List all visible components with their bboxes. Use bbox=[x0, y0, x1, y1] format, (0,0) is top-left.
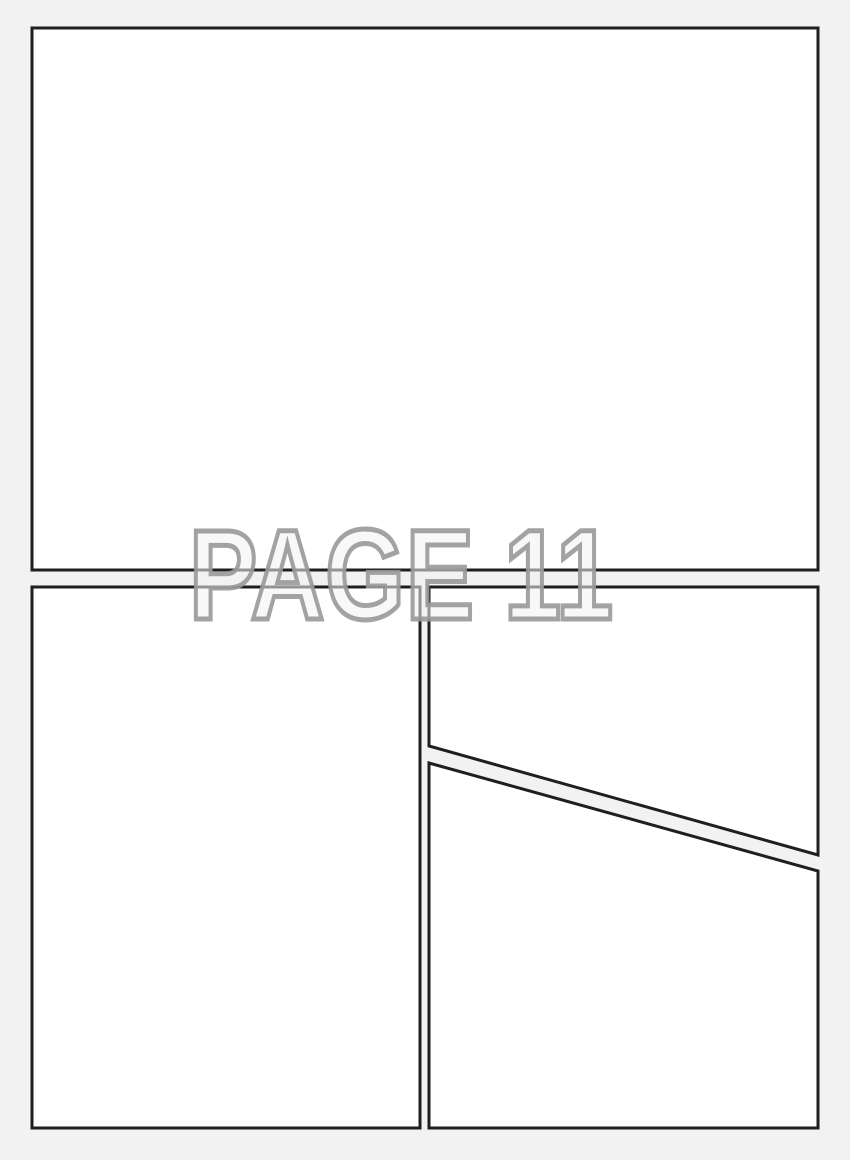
page-number-label: PAGE 11 bbox=[189, 512, 614, 640]
comic-page-template: PAGE 11 bbox=[0, 0, 850, 1160]
panel-bottom-left bbox=[32, 587, 420, 1128]
panel-top bbox=[32, 28, 818, 570]
